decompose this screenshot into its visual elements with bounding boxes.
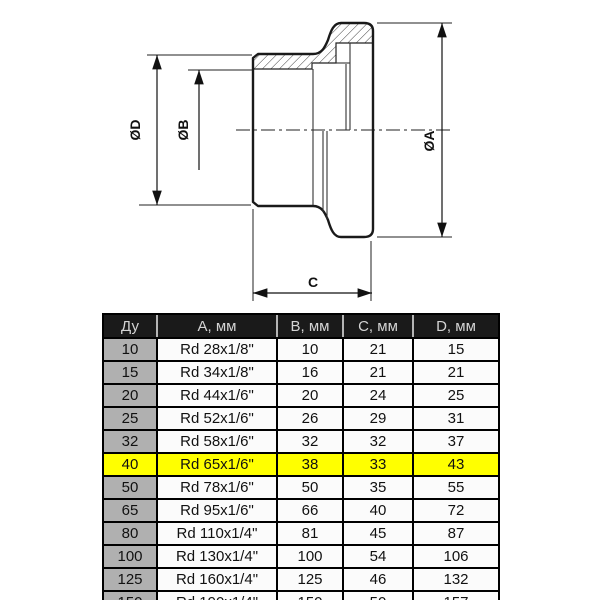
cell-value: 32: [277, 430, 343, 453]
header-a-mm: А, мм: [157, 314, 277, 338]
label-dia-d: ØD: [127, 120, 143, 141]
table-row: 10Rd 28x1/8"102115: [103, 338, 499, 361]
table-row: 50Rd 78x1/6"503555: [103, 476, 499, 499]
technical-drawing: ØD ØB ØA C: [0, 0, 600, 312]
table-row: 40Rd 65x1/6"383343: [103, 453, 499, 476]
label-dia-a: ØA: [421, 131, 437, 152]
cell-value: 132: [413, 568, 499, 591]
cell-value: 20: [277, 384, 343, 407]
section-hatch: [253, 23, 373, 69]
cell-du: 40: [103, 453, 157, 476]
cell-value: 33: [343, 453, 413, 476]
cell-value: 72: [413, 499, 499, 522]
table-row: 100Rd 130x1/4"10054106: [103, 545, 499, 568]
cell-value: Rd 44x1/6": [157, 384, 277, 407]
table-row: 25Rd 52x1/6"262931: [103, 407, 499, 430]
table-row: 15Rd 34x1/8"162121: [103, 361, 499, 384]
cell-du: 15: [103, 361, 157, 384]
cell-du: 125: [103, 568, 157, 591]
cell-value: 150: [277, 591, 343, 600]
cell-value: 38: [277, 453, 343, 476]
cell-value: Rd 160x1/4": [157, 568, 277, 591]
spec-table: Ду А, мм В, мм С, мм D, мм 10Rd 28x1/8"1…: [102, 313, 500, 600]
cell-value: 87: [413, 522, 499, 545]
cell-value: 24: [343, 384, 413, 407]
spec-table-body: 10Rd 28x1/8"10211515Rd 34x1/8"16212120Rd…: [103, 338, 499, 600]
header-c-mm: С, мм: [343, 314, 413, 338]
cell-value: Rd 110x1/4": [157, 522, 277, 545]
cell-du: 20: [103, 384, 157, 407]
table-row: 125Rd 160x1/4"12546132: [103, 568, 499, 591]
cell-value: 15: [413, 338, 499, 361]
cell-value: 26: [277, 407, 343, 430]
cell-value: 66: [277, 499, 343, 522]
cell-value: Rd 34x1/8": [157, 361, 277, 384]
bore-edges: [313, 43, 350, 219]
cell-value: Rd 130x1/4": [157, 545, 277, 568]
header-b-mm: В, мм: [277, 314, 343, 338]
header-du: Ду: [103, 314, 157, 338]
cell-value: 125: [277, 568, 343, 591]
table-header-row: Ду А, мм В, мм С, мм D, мм: [103, 314, 499, 338]
cell-value: Rd 28x1/8": [157, 338, 277, 361]
cell-value: 50: [343, 591, 413, 600]
table-row: 20Rd 44x1/6"202425: [103, 384, 499, 407]
cell-value: Rd 58x1/6": [157, 430, 277, 453]
cell-value: Rd 65x1/6": [157, 453, 277, 476]
cell-value: 35: [343, 476, 413, 499]
cell-du: 25: [103, 407, 157, 430]
cell-value: 21: [413, 361, 499, 384]
cell-du: 150: [103, 591, 157, 600]
cell-value: 21: [343, 338, 413, 361]
cell-du: 50: [103, 476, 157, 499]
cell-value: Rd 78x1/6": [157, 476, 277, 499]
cell-value: 106: [413, 545, 499, 568]
cell-du: 65: [103, 499, 157, 522]
header-d-mm: D, мм: [413, 314, 499, 338]
cell-value: 31: [413, 407, 499, 430]
cell-value: Rd 95x1/6": [157, 499, 277, 522]
cell-value: 54: [343, 545, 413, 568]
table-row: 65Rd 95x1/6"664072: [103, 499, 499, 522]
cell-value: 81: [277, 522, 343, 545]
cell-value: 37: [413, 430, 499, 453]
cell-du: 10: [103, 338, 157, 361]
spec-table-container: Ду А, мм В, мм С, мм D, мм 10Rd 28x1/8"1…: [102, 313, 498, 600]
cell-value: 45: [343, 522, 413, 545]
cell-du: 80: [103, 522, 157, 545]
cell-value: 25: [413, 384, 499, 407]
cell-du: 100: [103, 545, 157, 568]
cell-value: 55: [413, 476, 499, 499]
label-length-c: C: [308, 274, 318, 290]
cell-value: 16: [277, 361, 343, 384]
cell-value: 10: [277, 338, 343, 361]
cell-value: 40: [343, 499, 413, 522]
fitting-section-svg: ØD ØB ØA C: [0, 0, 600, 312]
page: ØD ØB ØA C Ду А, мм В, мм С, мм D, мм 10…: [0, 0, 600, 600]
label-dia-b: ØB: [175, 120, 191, 141]
cell-value: 21: [343, 361, 413, 384]
cell-value: 43: [413, 453, 499, 476]
cell-value: 46: [343, 568, 413, 591]
cell-value: 32: [343, 430, 413, 453]
table-row: 150Rd 190x1/4"15050157: [103, 591, 499, 600]
cell-du: 32: [103, 430, 157, 453]
cell-value: 100: [277, 545, 343, 568]
cell-value: 29: [343, 407, 413, 430]
cell-value: Rd 190x1/4": [157, 591, 277, 600]
table-row: 80Rd 110x1/4"814587: [103, 522, 499, 545]
table-row: 32Rd 58x1/6"323237: [103, 430, 499, 453]
cell-value: 50: [277, 476, 343, 499]
cell-value: 157: [413, 591, 499, 600]
cell-value: Rd 52x1/6": [157, 407, 277, 430]
